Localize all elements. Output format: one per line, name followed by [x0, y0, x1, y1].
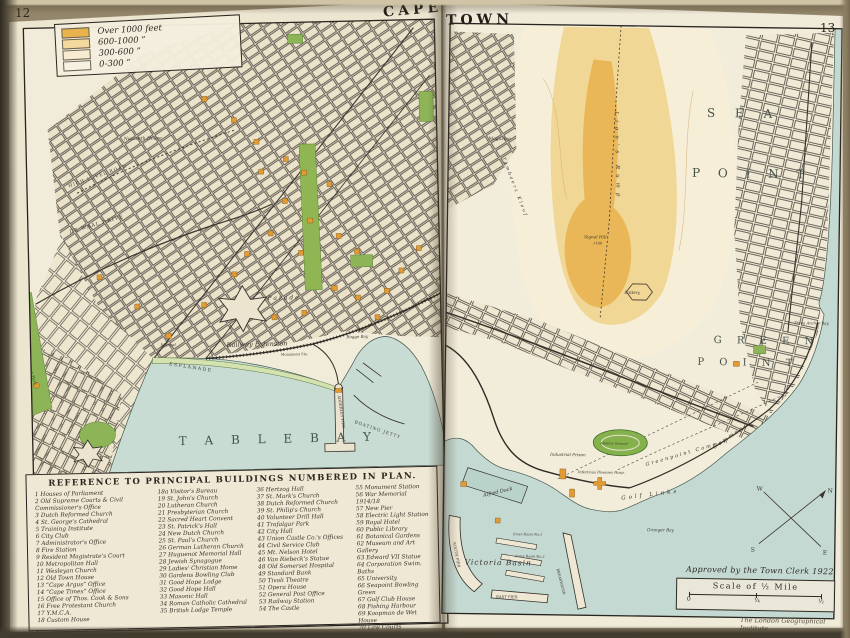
label-market: Market — [159, 342, 176, 347]
legend-swatch — [61, 27, 89, 38]
compass-s: S — [751, 547, 755, 554]
reference-column-4: 55 Monument Station56 War Memorial 1914/… — [355, 484, 434, 638]
label-granger-bay: Granger Bay — [647, 527, 675, 532]
legend-swatch — [62, 49, 90, 60]
photo-edge-top — [0, 0, 850, 14]
label-industrial-prison: Industrial Prison — [549, 452, 586, 458]
label-inner-basin: Inner Basin No.1 — [512, 532, 542, 536]
label-three-anchor-bay: Three Anchor Bay — [794, 320, 830, 325]
label-magazine: Magazine — [487, 136, 511, 142]
compass-e: E — [823, 550, 827, 557]
label-railway-extension: Railway Extension — [225, 340, 287, 349]
reference-entry: 35 British Lodge Temple — [160, 606, 259, 615]
reference-column-1: 1 Houses of Parliament2 Old Supreme Cour… — [35, 490, 161, 638]
atlas-photo: T A B L E B A Y ESPLANADE Railway Extens… — [0, 0, 850, 638]
photo-edge-left — [0, 0, 18, 638]
legend-swatch — [62, 38, 90, 49]
photo-edge-right — [840, 0, 850, 638]
label-outer-basin: Outer Basin No.2 — [515, 554, 545, 558]
reference-column-3: 36 Hertzog Hall37 St. Mark's Church38 Du… — [256, 485, 358, 638]
reference-entry: 54 The Castle — [259, 604, 358, 613]
scale-tick-quarter: ¼ — [754, 597, 760, 604]
compass-n: N — [828, 488, 833, 495]
legend-swatch — [63, 60, 91, 71]
scale-tick-0: 0 — [687, 596, 691, 603]
label-nazareth-house: Nazareth House — [123, 135, 162, 142]
label-parade: Parade — [266, 294, 300, 302]
label-infectious-hosp: Infectious Diseases Hosp. — [577, 470, 625, 475]
scale-title: Scale of ½ Mile — [677, 581, 834, 593]
page-gutter-shadow — [428, 0, 458, 638]
label-athletic-ground: Athletic Ground — [599, 441, 628, 445]
scale-tick-half: ½ — [818, 598, 824, 605]
elevation-legend: Over 1000 feet 600-1000 ” 300-600 ” 0-30… — [54, 14, 243, 77]
label-signal-elev: 1160 — [593, 241, 603, 245]
label-battery: Battery — [623, 290, 640, 295]
scale-box: Scale of ½ Mile 0 ¼ ½ — [676, 578, 836, 613]
label-victoria-basin: Victoria Basin — [465, 558, 532, 568]
label-point2: P O I N T — [697, 357, 798, 369]
label-monument-station: Monument Sta. — [281, 352, 308, 357]
photo-edge-bottom — [0, 626, 850, 638]
scale-bar: 0 ¼ ½ — [689, 594, 822, 603]
label-east-pier: EAST PIER — [496, 594, 518, 599]
reference-box: REFERENCE TO PRINCIPAL BUILDINGS NUMBERE… — [25, 466, 440, 632]
label-rogge-bay: Rogge Bay — [345, 334, 369, 340]
label-point: P O I N T — [692, 166, 812, 182]
reference-entry: 18 Custom House — [37, 616, 160, 626]
label-sea: S E A — [707, 106, 780, 121]
label-signal-hill: Signal Hill — [584, 234, 607, 239]
right-map: N S E W S E A P O I N T G R E E N P O I … — [442, 23, 842, 618]
legend-label: 0-300 ” — [99, 58, 131, 70]
label-green: G R E E N — [714, 335, 820, 347]
reference-column-2: 18a Visitor's Bureau19 St. John's Church… — [157, 487, 259, 638]
compass-w: W — [757, 486, 764, 493]
page-number-right: 13 — [820, 21, 835, 35]
